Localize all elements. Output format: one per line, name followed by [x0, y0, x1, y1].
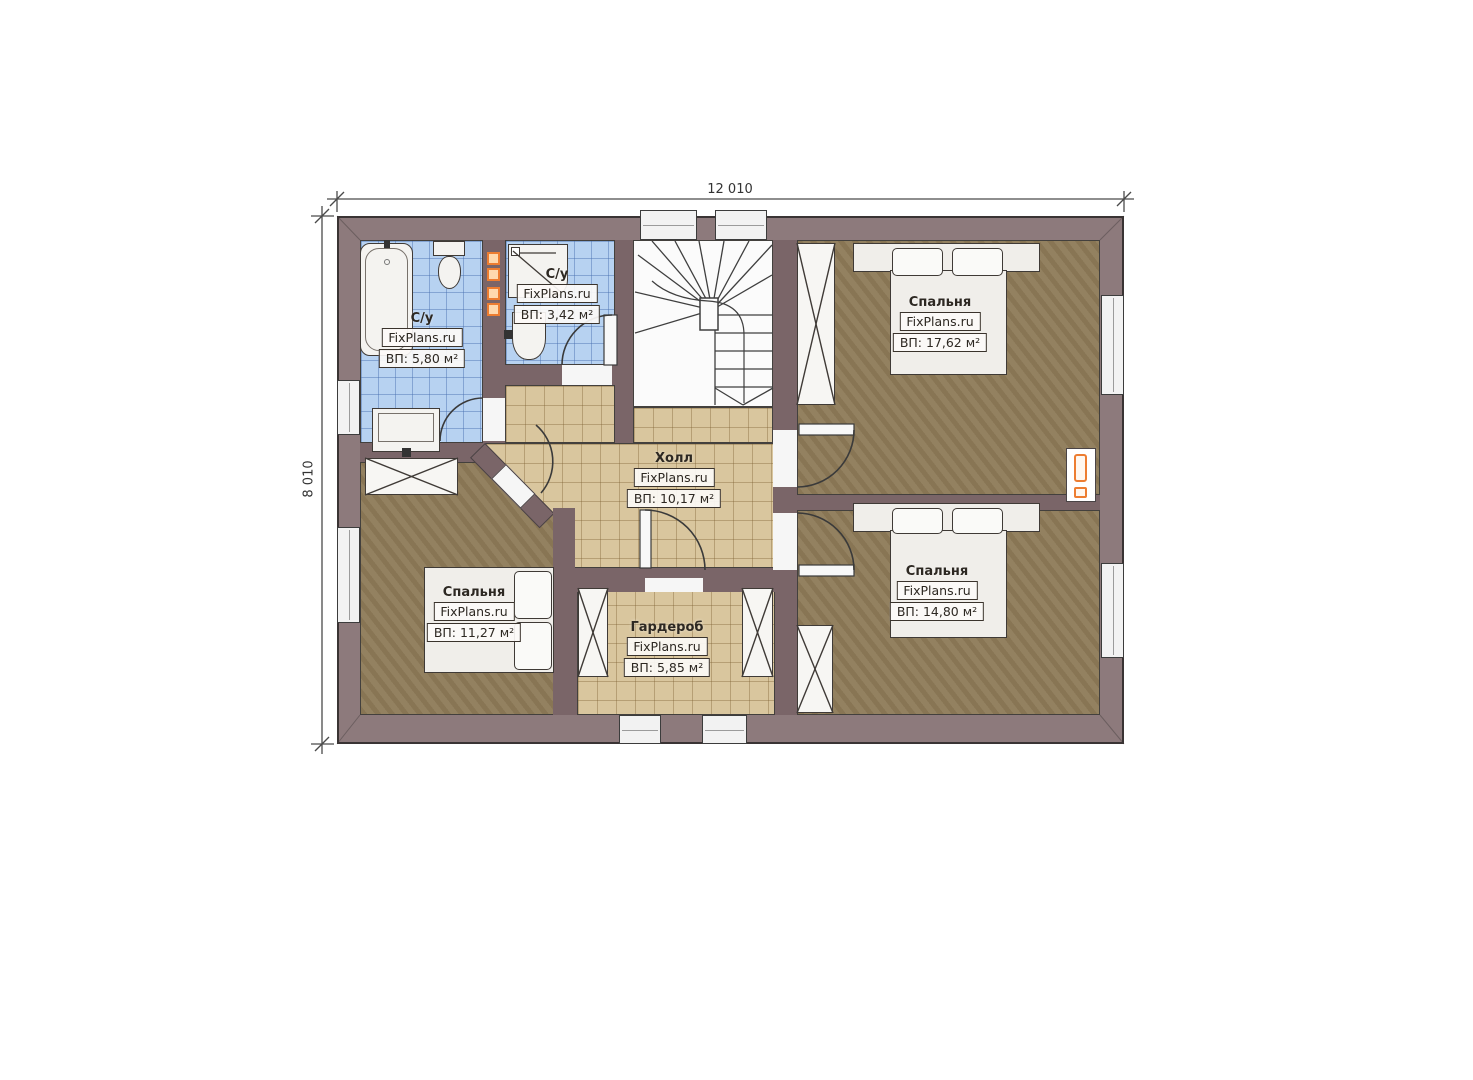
watermark: FixPlans.ru: [626, 637, 707, 656]
watermark: FixPlans.ru: [633, 468, 714, 487]
watermark: FixPlans.ru: [899, 312, 980, 331]
stairwell: [633, 240, 773, 407]
room-area: ВП: 17,62 м²: [893, 333, 987, 352]
door-opening-bedroom-top-right: [773, 430, 797, 487]
sink-icon: [372, 408, 440, 452]
wall-stub-right-2: [773, 570, 797, 592]
room-area: ВП: 14,80 м²: [890, 602, 984, 621]
room-label-bathroom-top-middle: С/у FixPlans.ru ВП: 3,42 м²: [514, 268, 600, 324]
dimension-height-label: 8 010: [302, 455, 317, 502]
wall-stub-right-1: [773, 487, 797, 513]
room-area: ВП: 11,27 м²: [427, 623, 521, 642]
window-right-2: [1101, 563, 1124, 658]
pillow-icon: [892, 508, 943, 534]
room-label-bathroom-top-left: С/у FixPlans.ru ВП: 5,80 м²: [379, 312, 465, 368]
room-name: Спальня: [443, 586, 505, 600]
window-bottom-1: [619, 715, 661, 744]
room-name: С/у: [411, 312, 434, 326]
room-label-bedroom-bottom-left: Спальня FixPlans.ru ВП: 11,27 м²: [427, 586, 521, 642]
room-area: ВП: 5,85 м²: [624, 658, 710, 677]
room-name: С/у: [546, 268, 569, 282]
watermark: FixPlans.ru: [516, 284, 597, 303]
door-opening-bathroom-1: [483, 398, 505, 441]
window-right-1: [1101, 295, 1124, 395]
room-area: ВП: 3,42 м²: [514, 305, 600, 324]
room-hall-upper-b: [633, 407, 773, 443]
window-bottom-2: [702, 715, 747, 744]
pillow-icon: [892, 248, 943, 276]
room-label-hall: Холл FixPlans.ru ВП: 10,17 м²: [627, 452, 721, 508]
room-area: ВП: 10,17 м²: [627, 489, 721, 508]
wardrobe-cabinet-icon: [797, 243, 835, 405]
toilet-icon: [438, 256, 461, 289]
chimney-flue-icon: [487, 268, 500, 281]
wardrobe-cabinet-icon: [742, 588, 773, 677]
chimney-flue-icon: [487, 287, 500, 300]
watermark: FixPlans.ru: [896, 581, 977, 600]
room-area: ВП: 5,80 м²: [379, 349, 465, 368]
watermark: FixPlans.ru: [381, 328, 462, 347]
wardrobe-cabinet-icon: [797, 625, 833, 713]
radiator-icon: [1066, 448, 1096, 502]
toilet-icon: [433, 241, 465, 256]
door-opening-bathroom-2: [562, 365, 612, 385]
bed-headboard: [853, 243, 1040, 272]
window-left-1: [337, 380, 360, 435]
window-left-2: [337, 527, 360, 623]
chimney-flue-icon: [487, 252, 500, 265]
room-label-bedroom-bottom-right: Спальня FixPlans.ru ВП: 14,80 м²: [890, 565, 984, 621]
door-opening-wardrobe: [645, 578, 703, 592]
pillow-icon: [952, 248, 1003, 276]
wardrobe-cabinet-icon: [578, 588, 608, 677]
room-name: Гардероб: [631, 621, 704, 635]
room-name: Холл: [655, 452, 693, 466]
window-top-2: [715, 210, 767, 240]
floor-plan: С/у FixPlans.ru ВП: 5,80 м² С/у FixPlans…: [0, 0, 1473, 1080]
watermark: FixPlans.ru: [433, 602, 514, 621]
dimension-width-label: 12 010: [702, 182, 758, 197]
bed-headboard: [853, 503, 1040, 532]
room-name: Спальня: [909, 296, 971, 310]
room-label-wardrobe: Гардероб FixPlans.ru ВП: 5,85 м²: [624, 621, 710, 677]
window-top-1: [640, 210, 697, 240]
pillow-icon: [952, 508, 1003, 534]
room-label-bedroom-top-right: Спальня FixPlans.ru ВП: 17,62 м²: [893, 296, 987, 352]
wall-bedroom-hall: [553, 508, 575, 715]
chimney-flue-icon: [487, 303, 500, 316]
room-name: Спальня: [906, 565, 968, 579]
door-opening-bedroom-bottom-right: [773, 513, 797, 570]
wardrobe-cabinet-icon: [365, 458, 458, 495]
room-hall-upper-a: [505, 385, 615, 443]
